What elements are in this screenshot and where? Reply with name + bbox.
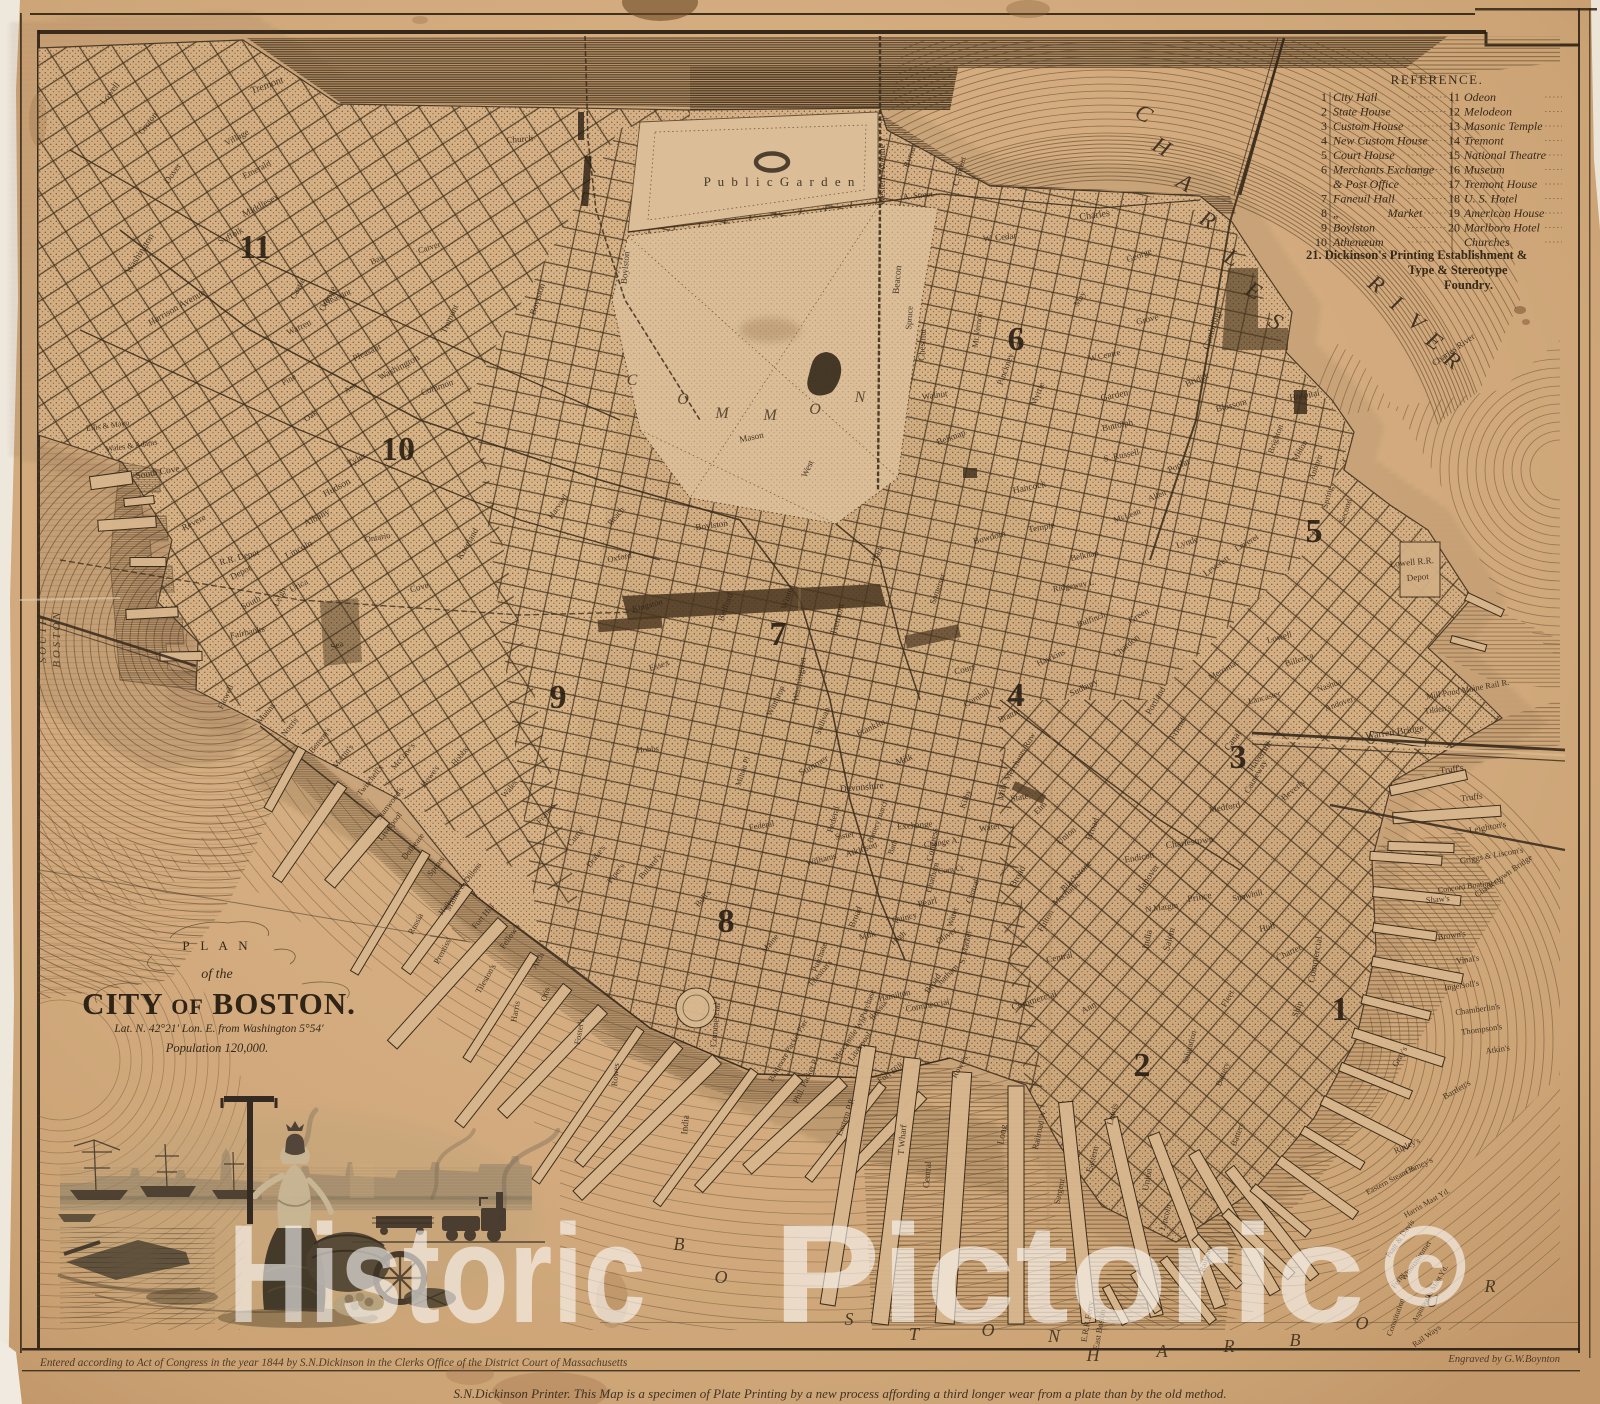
svg-text:Pictoric: Pictoric [773,1195,1365,1352]
svg-text:Historic: Historic [228,1195,646,1352]
svg-text:c: c [1405,1230,1445,1310]
